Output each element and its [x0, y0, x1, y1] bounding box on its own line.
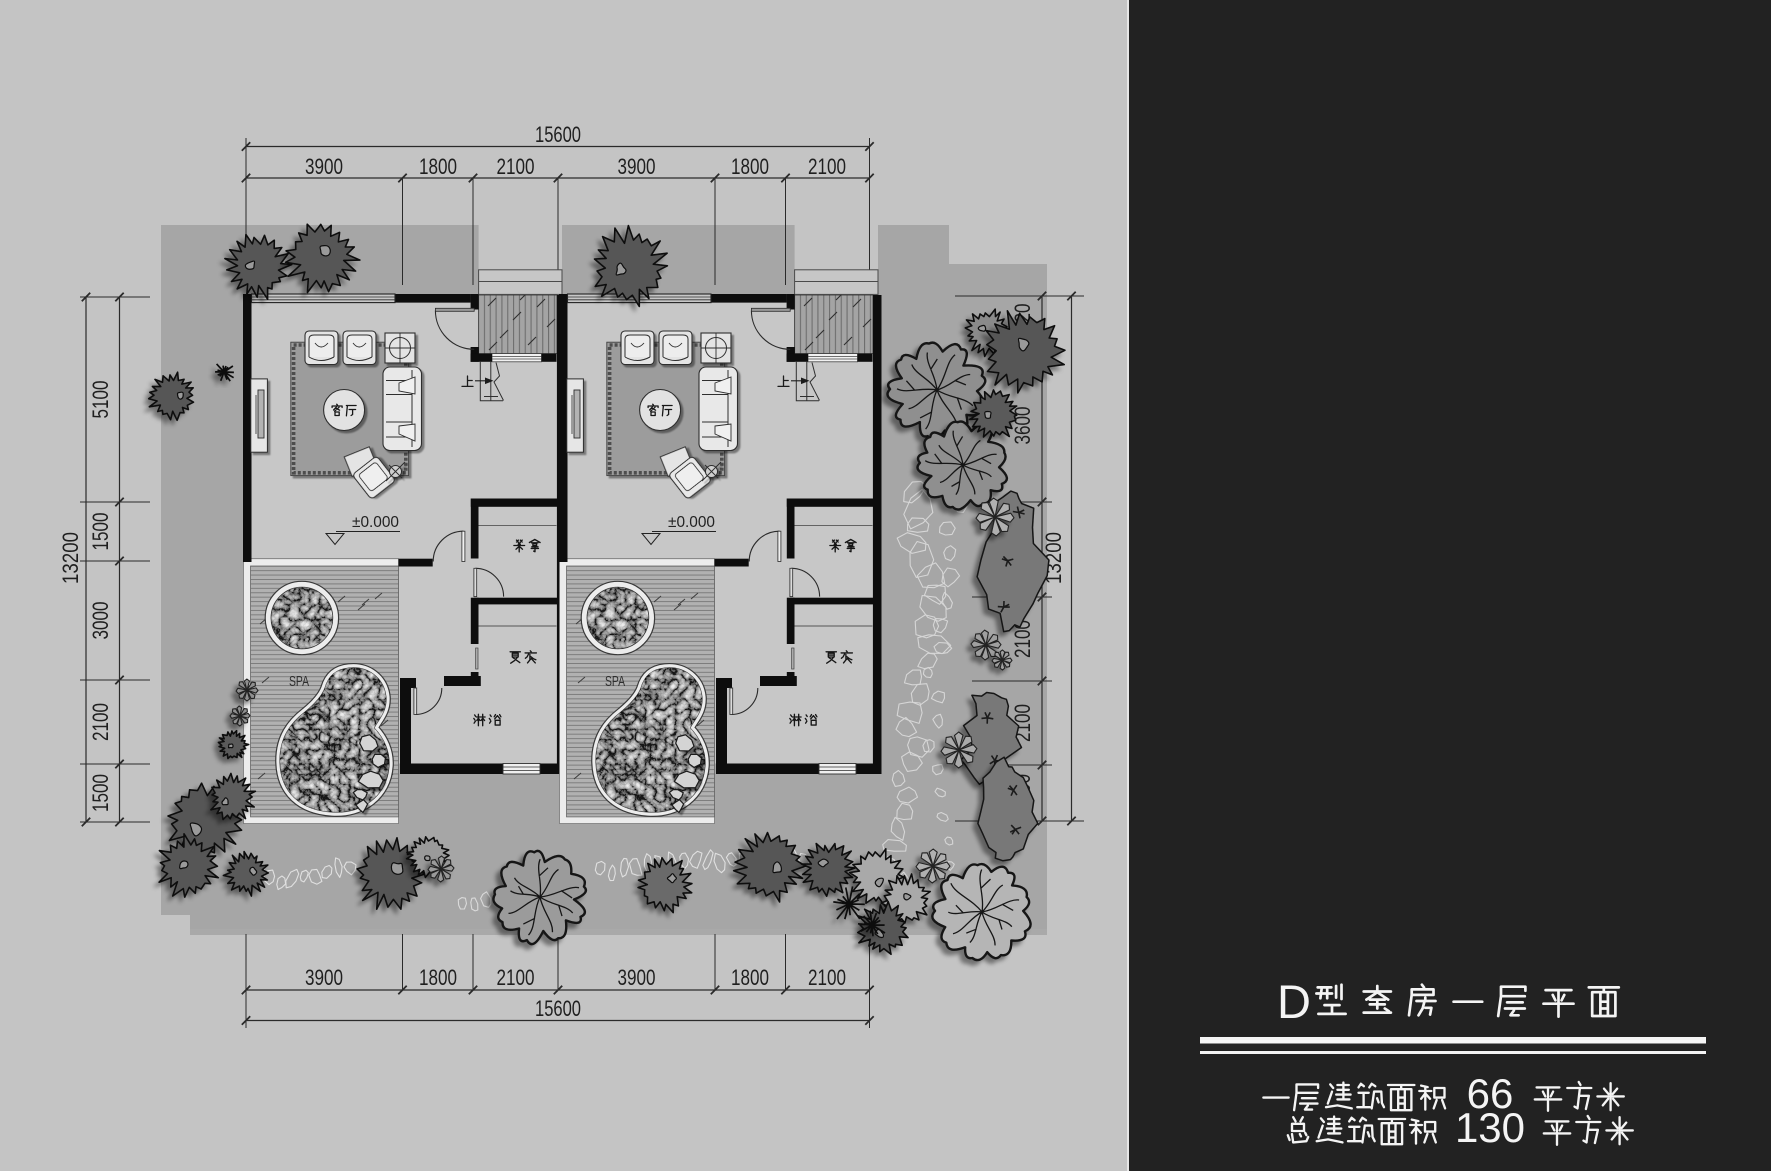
svg-text:5100: 5100: [88, 381, 113, 419]
svg-text:3900: 3900: [305, 965, 343, 990]
svg-text:2100: 2100: [497, 154, 535, 179]
svg-text:2100: 2100: [808, 154, 846, 179]
svg-text:1800: 1800: [419, 965, 457, 990]
svg-text:3600: 3600: [1010, 407, 1035, 445]
svg-text:15600: 15600: [535, 996, 581, 1021]
svg-text:SPA: SPA: [289, 674, 309, 690]
svg-text:3900: 3900: [618, 154, 656, 179]
svg-text:13200: 13200: [58, 532, 83, 584]
svg-text:±0.000: ±0.000: [668, 514, 715, 531]
svg-text:1800: 1800: [419, 154, 457, 179]
svg-text:15600: 15600: [535, 122, 581, 147]
svg-text:±0.000: ±0.000: [352, 514, 399, 531]
svg-text:1500: 1500: [88, 513, 113, 551]
svg-text:SPA: SPA: [605, 674, 625, 690]
svg-text:2100: 2100: [88, 703, 113, 741]
svg-text:3900: 3900: [305, 154, 343, 179]
svg-text:1800: 1800: [731, 965, 769, 990]
svg-text:1800: 1800: [731, 154, 769, 179]
svg-text:130: 130: [1455, 1104, 1525, 1151]
svg-text:D: D: [1277, 975, 1311, 1028]
svg-text:3000: 3000: [88, 602, 113, 640]
svg-text:2100: 2100: [808, 965, 846, 990]
svg-text:3900: 3900: [618, 965, 656, 990]
svg-text:1500: 1500: [88, 774, 113, 812]
svg-text:2100: 2100: [497, 965, 535, 990]
